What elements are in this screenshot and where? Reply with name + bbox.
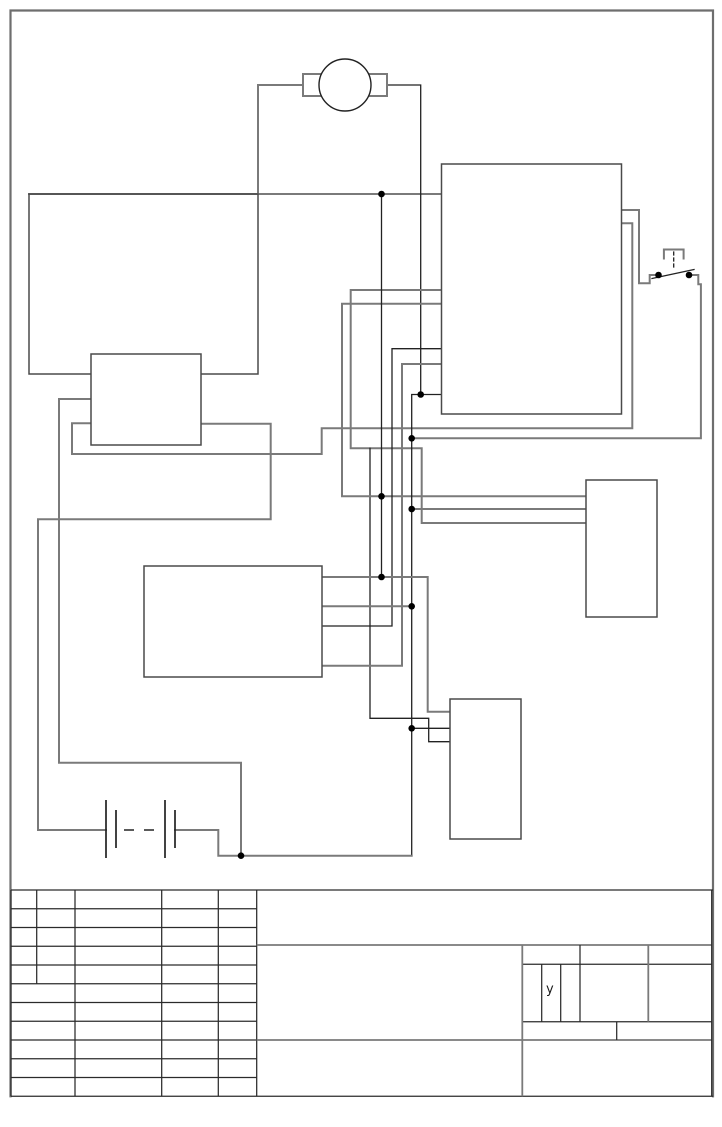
motor-symbol: [319, 59, 371, 111]
wire-battery-negative: [175, 830, 412, 856]
wire-switch-left-lead: [622, 210, 656, 283]
component-box-center: [144, 566, 322, 677]
component-box-top-right: [442, 164, 622, 414]
wire-main-spine: [412, 395, 442, 856]
junction-dot: [686, 272, 693, 279]
junction-dot: [408, 506, 415, 513]
component-box-small-left: [91, 354, 201, 445]
junction-dot: [655, 272, 662, 279]
junction-dot: [378, 191, 385, 198]
junction-dot: [408, 603, 415, 610]
junction-dot: [378, 493, 385, 500]
junction-dot: [408, 435, 415, 442]
junction-dot: [417, 391, 424, 398]
junction-dot: [378, 574, 385, 581]
schematic-canvas: [0, 0, 722, 1127]
component-box-bottom-right: [450, 699, 521, 839]
junction-dot: [238, 852, 245, 859]
junction-dot: [408, 725, 415, 732]
wire-center-to-bottomright-1: [322, 577, 450, 712]
wire-motor-left: [258, 85, 303, 194]
component-box-top-left: [29, 194, 258, 374]
title-block-cell-label: y: [546, 983, 554, 996]
component-box-mid-right: [586, 480, 657, 617]
schematic-page: y: [0, 0, 722, 1127]
